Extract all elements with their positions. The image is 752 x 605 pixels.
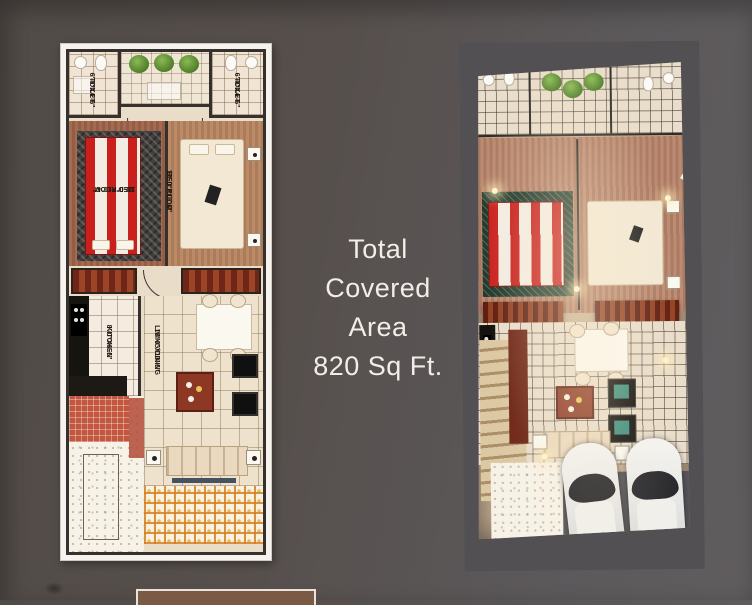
kitchen-counter-lower xyxy=(69,376,127,396)
toilet-seat-icon xyxy=(225,55,237,71)
bedroom-left-room: BED ROOM 12'-0"X10'-0" xyxy=(69,121,165,266)
red-tile-patch xyxy=(69,396,129,442)
landing xyxy=(491,462,572,539)
pillow xyxy=(189,144,209,155)
lamp-dot xyxy=(253,153,257,157)
stove-icon xyxy=(71,304,87,336)
side-table xyxy=(246,450,261,465)
floor-plan-3d-floor xyxy=(474,62,690,539)
pillow xyxy=(92,240,110,250)
cushion xyxy=(614,384,629,399)
car-windshield xyxy=(631,469,679,500)
bedroom-right-room: BED ROOM 12'-0"X10'-0" xyxy=(168,121,263,266)
sofa xyxy=(166,446,248,476)
cushion xyxy=(614,420,629,435)
porch-outline xyxy=(83,454,119,540)
wall-light xyxy=(663,357,669,363)
armchair xyxy=(232,392,258,416)
dining-chair xyxy=(230,294,246,308)
caption-line-3: Area xyxy=(292,308,464,347)
bed-left: BED ROOM 12'-0"X10'-0" xyxy=(85,137,141,255)
lamp-dot xyxy=(252,456,257,461)
dining-table xyxy=(196,304,252,350)
toilet-left-room: TOILET 6'-0"X4'-6" xyxy=(69,52,121,118)
side-table xyxy=(533,434,548,449)
living-dining-room: LIVING/DINING 18'-0"X13'-6" xyxy=(144,296,263,486)
wardrobe-left xyxy=(71,268,137,294)
nightstand xyxy=(666,200,680,213)
dining-chair xyxy=(574,372,590,386)
bed-throw xyxy=(205,185,222,206)
plant-icon xyxy=(584,72,604,90)
floor-plan-2d-frame: TOILET 6'-0"X4'-6" TOILET 6'-0"X4'-6" xyxy=(60,43,272,561)
armchair-3d xyxy=(608,379,636,408)
side-table xyxy=(146,450,161,465)
lamp-dot xyxy=(253,239,257,243)
car-roof xyxy=(573,499,617,545)
car-right xyxy=(625,436,687,549)
toilet-band xyxy=(474,62,686,135)
wardrobe-left-3d xyxy=(483,301,563,323)
plant-icon xyxy=(563,80,583,98)
washbasin-icon xyxy=(663,72,675,84)
pillow xyxy=(116,240,134,250)
covered-area-caption: Total Covered Area 820 Sq Ft. xyxy=(292,230,464,386)
bed-left-3d xyxy=(488,201,565,287)
lamp-dot xyxy=(152,456,157,461)
toilet-right-room: TOILET 6'-0"X4'-6" xyxy=(209,52,263,118)
balcony-planter xyxy=(121,52,209,107)
bottom-smudge xyxy=(44,582,64,595)
lattice-lawn xyxy=(144,486,263,544)
toilet-seat-icon xyxy=(503,71,514,86)
partial-bottom-frame xyxy=(136,589,316,605)
wall-light xyxy=(541,453,547,459)
wardrobe-right xyxy=(181,268,261,294)
wall-light xyxy=(492,188,498,194)
red-runner xyxy=(129,398,144,458)
plant-icon xyxy=(154,54,174,72)
cup xyxy=(568,406,574,412)
balcony-step xyxy=(147,82,181,100)
kitchen-room: KITCHEN 8'-0"X6'-6" xyxy=(69,296,141,396)
plant-icon xyxy=(542,73,562,91)
nightstand xyxy=(667,276,681,289)
dining-chair xyxy=(202,348,218,362)
coffee-table xyxy=(176,372,214,412)
cup xyxy=(188,396,194,402)
stair-wall xyxy=(508,330,528,444)
armchair xyxy=(232,354,258,378)
pillow xyxy=(215,144,235,155)
dining-chair xyxy=(202,294,218,308)
wardrobe-right-3d xyxy=(595,300,680,322)
washbasin-icon xyxy=(482,74,494,86)
car-windshield xyxy=(567,472,616,504)
floor-plan-3d xyxy=(459,41,705,571)
burner xyxy=(80,318,84,322)
cup xyxy=(564,394,570,400)
cup xyxy=(186,382,192,388)
floor-plan-2d: TOILET 6'-0"X4'-6" TOILET 6'-0"X4'-6" xyxy=(66,49,266,555)
caption-line-2: Covered xyxy=(292,269,464,308)
burner xyxy=(74,318,78,322)
plant-icon xyxy=(179,55,199,73)
washbasin-icon xyxy=(245,56,258,69)
caption-line-1: Total xyxy=(292,230,464,269)
armchair-3d xyxy=(608,414,636,443)
nightstand xyxy=(247,147,261,161)
toilet-seat-icon xyxy=(643,77,654,92)
coffee-table-3d xyxy=(555,386,593,420)
burner xyxy=(80,308,84,312)
burner xyxy=(74,308,78,312)
bed-right-3d xyxy=(587,200,664,286)
caption-line-4: 820 Sq Ft. xyxy=(292,347,464,386)
plant-icon xyxy=(129,55,149,73)
nightstand xyxy=(247,233,261,247)
cup xyxy=(196,386,202,392)
toilet-seat-icon xyxy=(95,55,107,71)
cup xyxy=(576,397,582,403)
washbasin-icon xyxy=(74,56,87,69)
doormat xyxy=(172,478,236,483)
bed-throw xyxy=(629,225,643,242)
car-roof xyxy=(636,498,678,544)
